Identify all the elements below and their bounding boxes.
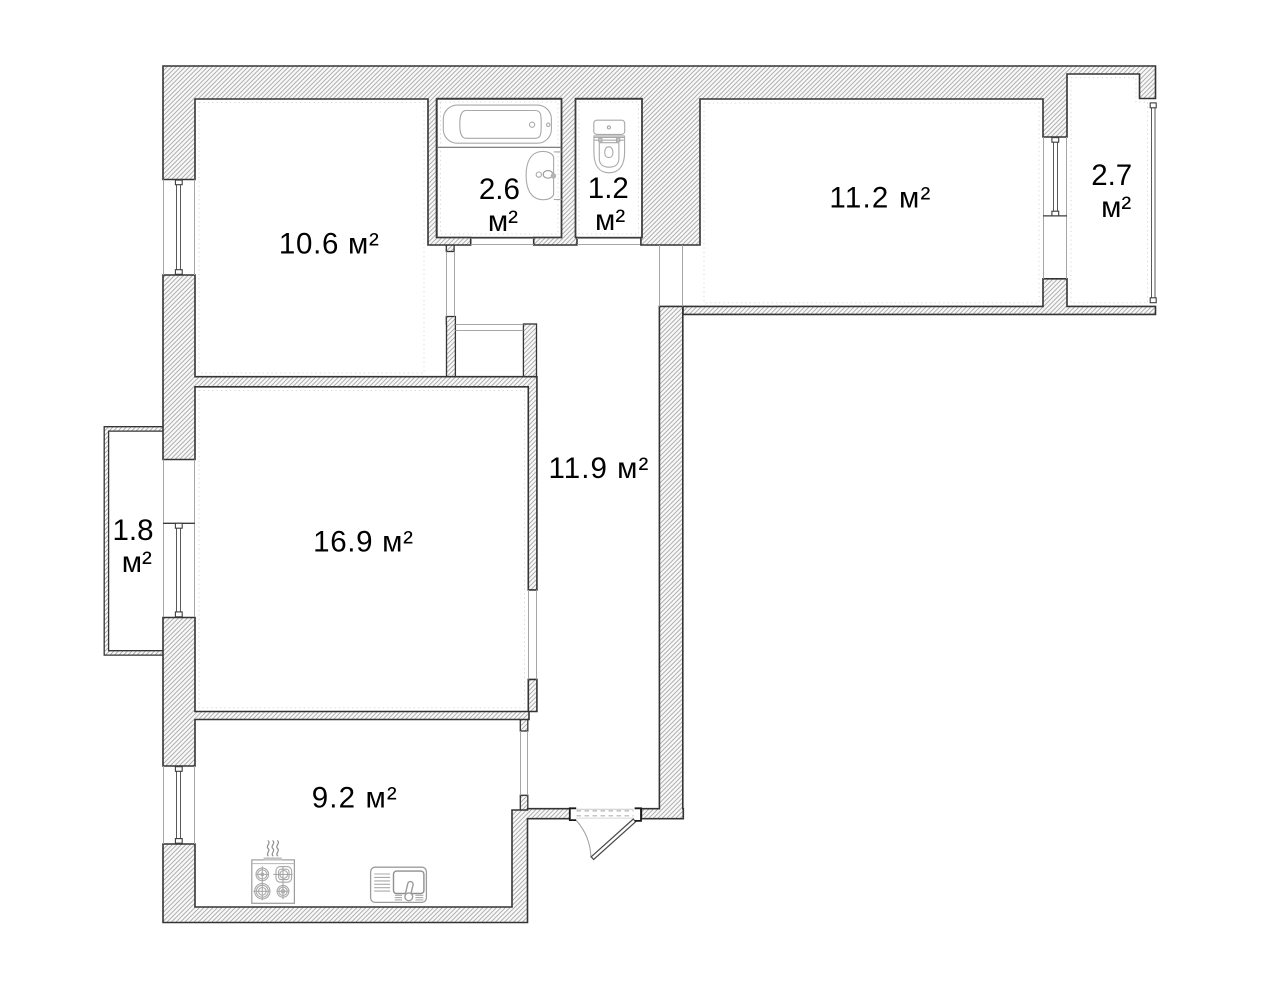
svg-text:м²: м² xyxy=(1101,191,1131,224)
svg-text:2.7: 2.7 xyxy=(1091,159,1132,192)
svg-text:11.9 м²: 11.9 м² xyxy=(549,452,649,485)
svg-text:16.9 м²: 16.9 м² xyxy=(313,525,413,558)
svg-text:10.6 м²: 10.6 м² xyxy=(279,227,379,260)
svg-text:9.2 м²: 9.2 м² xyxy=(312,781,397,814)
svg-text:1.8: 1.8 xyxy=(112,514,153,547)
svg-text:2.6: 2.6 xyxy=(479,173,520,206)
svg-text:11.2 м²: 11.2 м² xyxy=(829,182,930,215)
svg-text:м²: м² xyxy=(595,204,625,237)
svg-text:1.2: 1.2 xyxy=(588,172,629,205)
svg-text:м²: м² xyxy=(488,205,518,238)
svg-text:м²: м² xyxy=(122,546,152,579)
